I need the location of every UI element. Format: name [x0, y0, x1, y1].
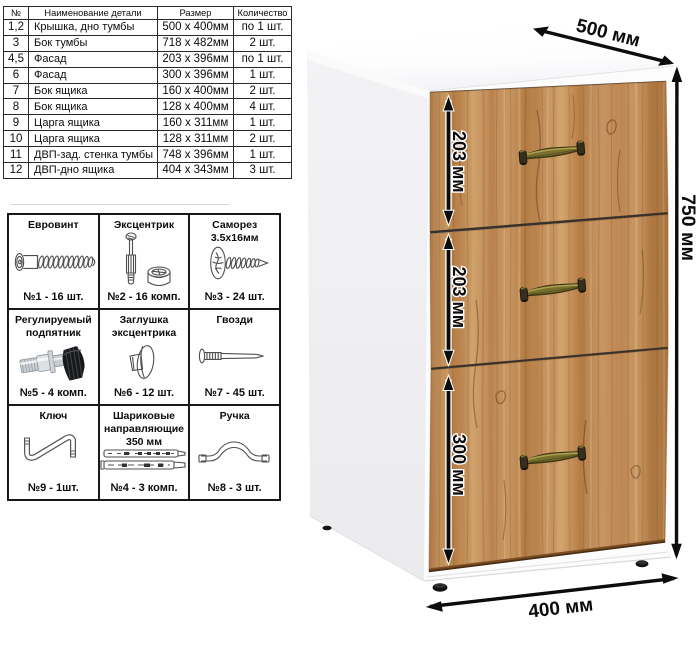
svg-text:203 мм: 203 мм: [449, 131, 469, 193]
svg-text:300 мм: 300 мм: [449, 434, 469, 496]
svg-text:203 мм: 203 мм: [449, 266, 469, 328]
svg-text:400 мм: 400 мм: [527, 594, 594, 622]
svg-text:750 мм: 750 мм: [677, 194, 699, 261]
